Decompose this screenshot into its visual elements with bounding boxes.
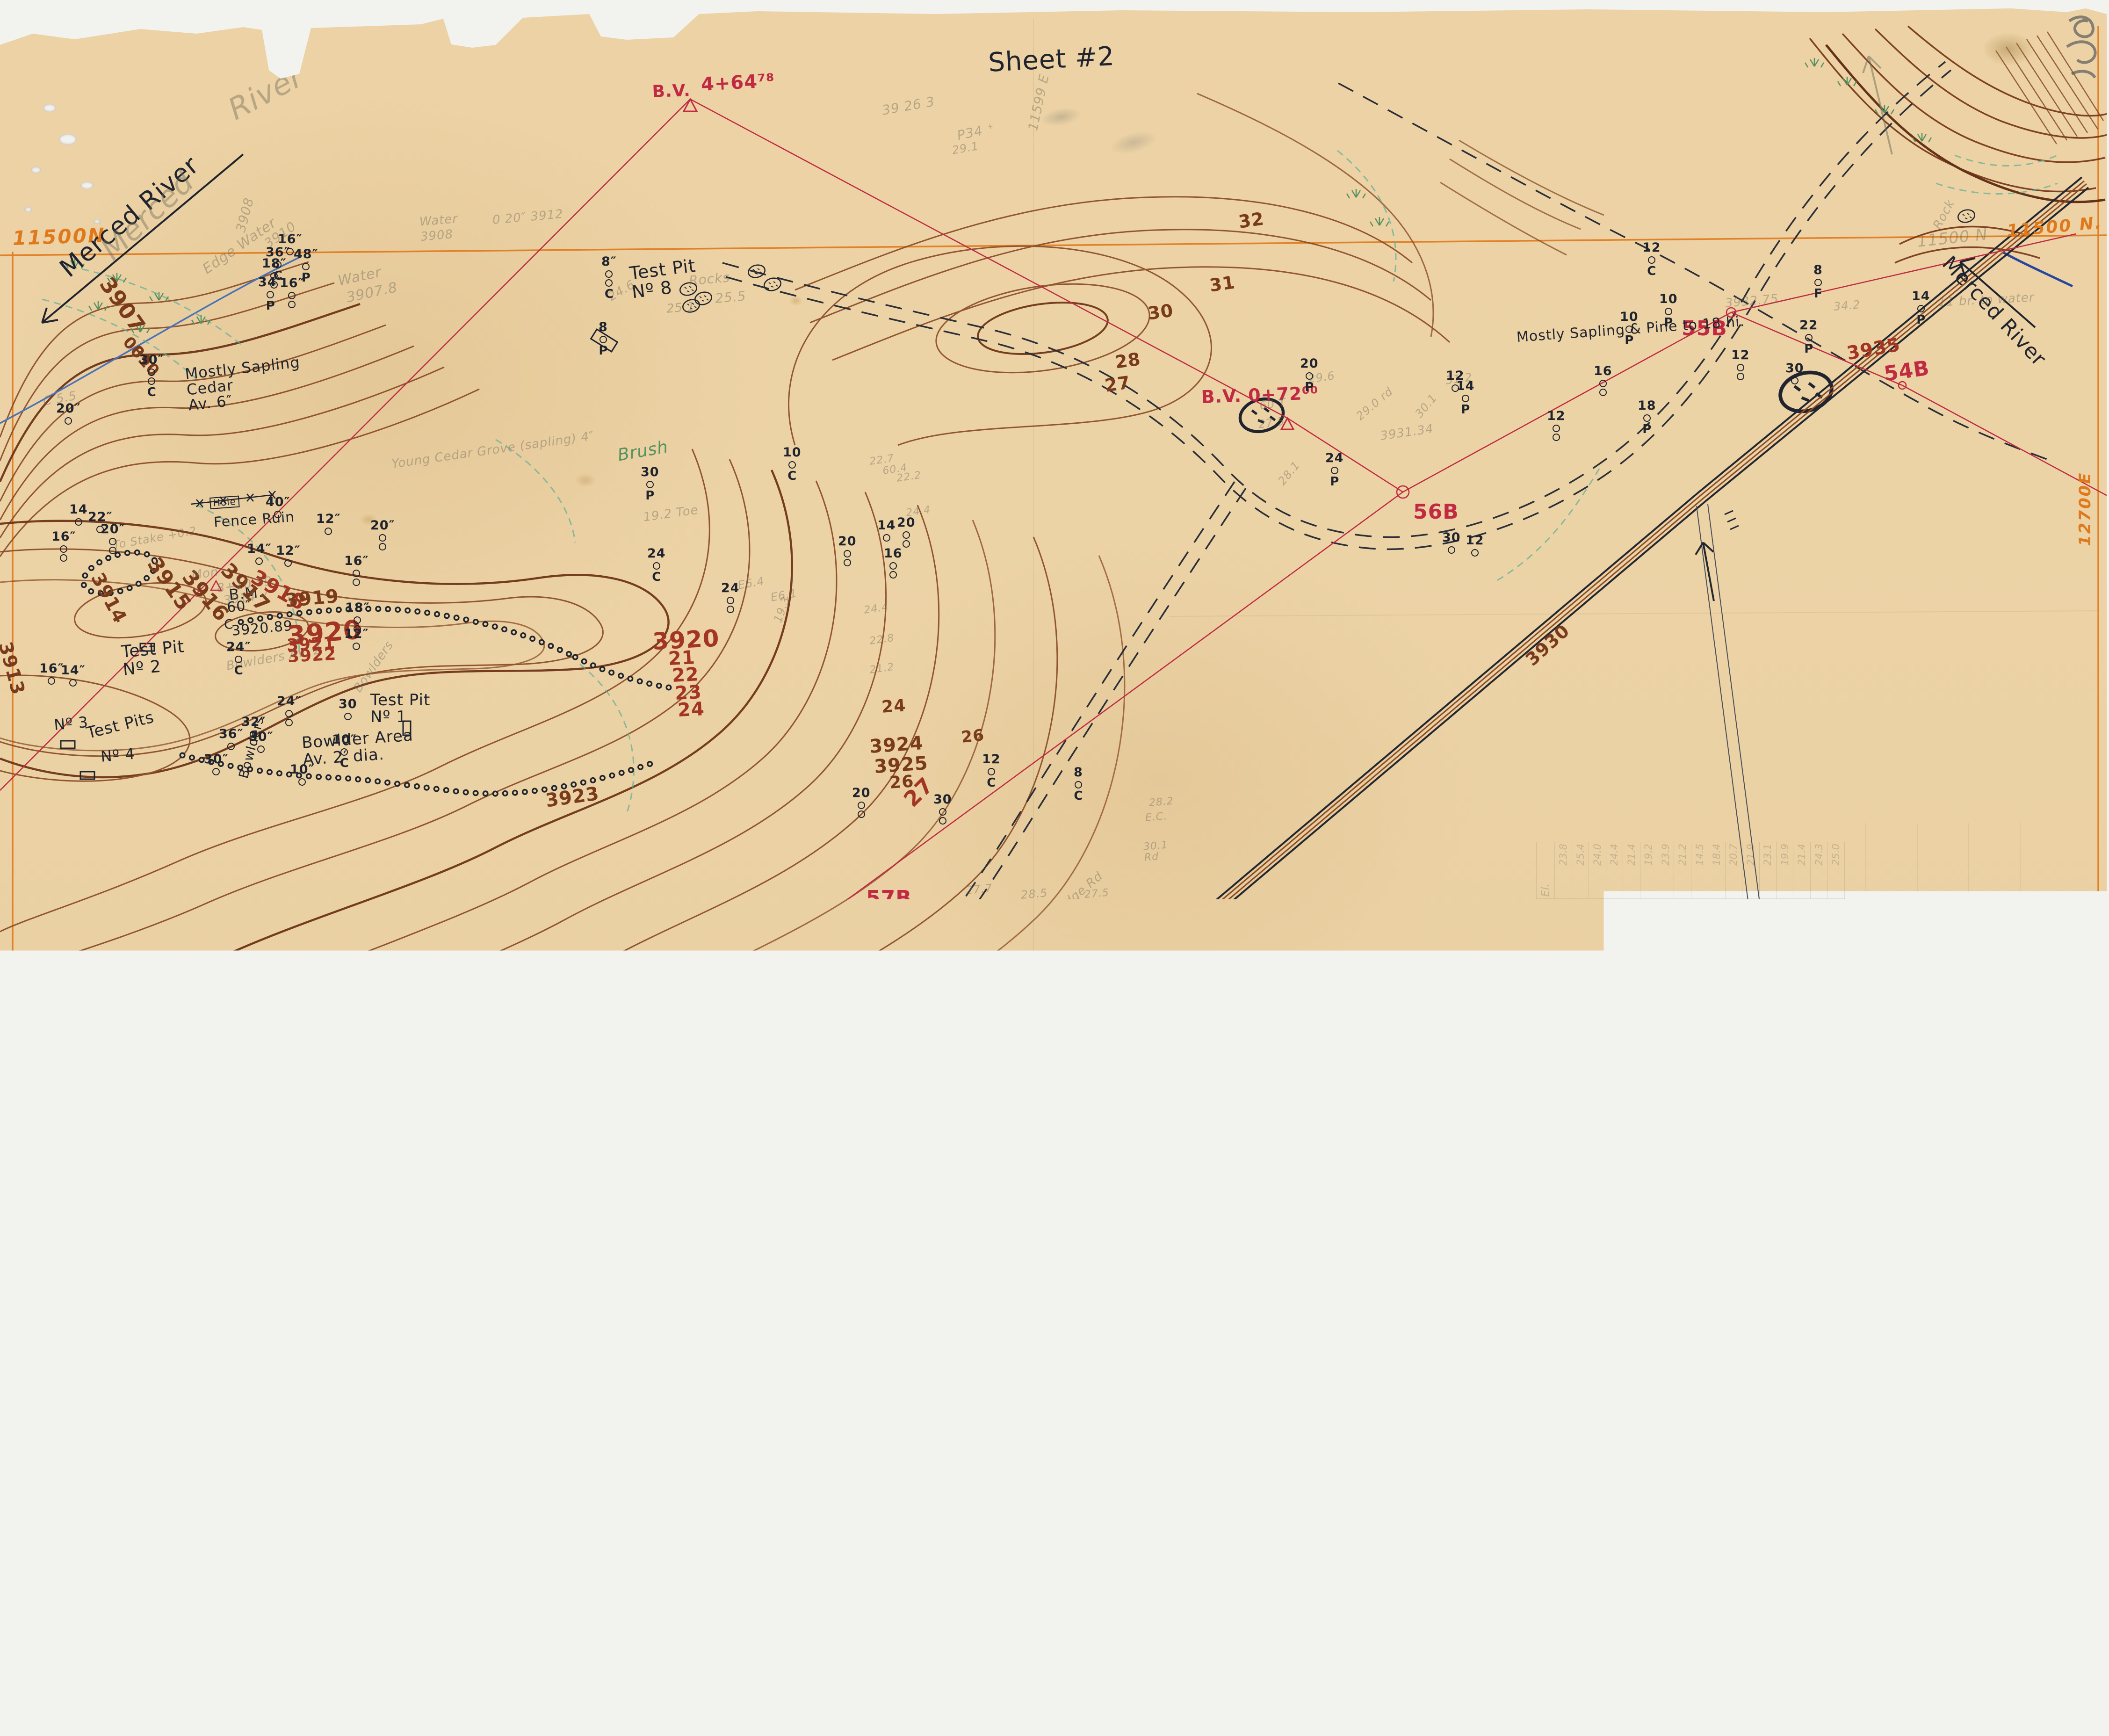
tree-size-label: 16″	[280, 276, 304, 290]
survey-cell: -6.4	[1793, 898, 1810, 963]
survey-cell: 15	[1810, 1145, 1827, 1192]
tree-symbol: 8	[294, 1473, 303, 1497]
survey-cell: -2.8	[1827, 898, 1845, 963]
map-label-gh-342: 34.2	[1833, 299, 1861, 313]
tree-trunk-icon	[379, 543, 386, 550]
survey-cell: -6 3.2	[1657, 1019, 1674, 1096]
tree-trunk-icon	[1737, 373, 1744, 380]
map-label-c30t: 30	[1147, 301, 1175, 323]
survey-cell	[1810, 963, 1827, 1020]
survey-cell: 16	[1827, 1145, 1845, 1192]
map-label-gh-282: 28.2	[1148, 796, 1174, 809]
tree-size-label: 14	[1912, 289, 1930, 304]
tree-species-label: P	[1642, 422, 1651, 436]
survey-cell: 21.2	[1674, 842, 1691, 899]
survey-row: 13130-7.919.9	[1777, 842, 1793, 1193]
tree-trunk-icon	[1625, 325, 1633, 333]
tree-size-label: 20	[1300, 356, 1319, 371]
tree-size-label: 30	[1785, 361, 1804, 376]
tree-symbol: 16″	[51, 529, 76, 562]
tree-trunk-icon	[858, 802, 865, 809]
tree-trunk-icon	[988, 768, 995, 775]
tree-trunk-icon	[939, 808, 946, 816]
tree-trunk-icon	[835, 1013, 843, 1020]
tree-symbol: 8F	[1813, 263, 1823, 301]
tree-symbol: 14C	[338, 1482, 356, 1519]
survey-cell: -4.7	[1759, 898, 1776, 963]
tree-symbol: 36″	[219, 727, 244, 750]
survey-cell: 14.5	[1691, 842, 1708, 899]
tree-trunk-icon	[1805, 334, 1813, 341]
tree-size-label: 36″	[219, 727, 244, 741]
tree-species-label: C	[342, 1505, 351, 1519]
survey-cell: 9	[1708, 1145, 1725, 1192]
tree-size-label: 14	[69, 502, 88, 517]
tree-size-label: 14″	[61, 663, 86, 678]
tree-size-label: 16	[1594, 364, 1612, 378]
tree-trunk-icon	[1665, 308, 1672, 315]
tree-symbol: 10P	[1620, 310, 1639, 347]
survey-row: 14114-6.421.4	[1793, 842, 1810, 1193]
tree-size-label: 18	[1638, 398, 1656, 413]
tree-size-label: 8	[834, 997, 844, 1012]
tree-trunk-icon	[790, 978, 798, 986]
survey-cell: 8	[1691, 1145, 1708, 1192]
tree-species-label: C	[851, 1025, 860, 1039]
tree-trunk-icon	[802, 937, 810, 945]
map-label-c26b: 26	[961, 727, 985, 746]
survey-cell: -7.1	[1725, 898, 1742, 963]
tree-size-label: 30″	[204, 752, 229, 767]
tree-trunk-icon	[1917, 305, 1925, 312]
survey-cell: 23.1	[1759, 842, 1776, 899]
tree-symbol: 8C	[834, 997, 844, 1035]
tree-trunk-icon	[1599, 389, 1607, 396]
survey-cell: 75	[1640, 1096, 1657, 1146]
tree-size-label: 14	[338, 1482, 356, 1496]
survey-cell: -8.6	[1640, 898, 1657, 963]
tree-size-label: 20″	[56, 401, 81, 416]
survey-cell	[1623, 1019, 1640, 1096]
tree-species-label: F	[1814, 287, 1822, 301]
tree-size-label: 48″	[294, 247, 318, 261]
corner-scribble	[2067, 17, 2095, 78]
tree-trunk-icon	[889, 562, 897, 570]
tree-species-label: P	[1664, 316, 1673, 330]
tree-size-label: 24	[647, 546, 666, 561]
tree-species-label: C	[834, 1021, 843, 1035]
tree-size-label: 30	[641, 465, 659, 479]
tree-size-label: 10	[846, 1001, 865, 1015]
tree-species-label: C	[340, 756, 349, 770]
tree-symbol: 20″	[56, 401, 81, 425]
survey-cell	[1793, 1019, 1810, 1096]
tree-size-label: 8	[788, 1001, 798, 1015]
tree-size-label: 20″	[101, 522, 125, 536]
tree-species-label: C	[291, 1522, 300, 1536]
tree-size-label: 14	[877, 518, 896, 533]
tree-size-label: 14″	[247, 542, 272, 556]
map-label-o-10700: 10700 N	[97, 1656, 204, 1681]
tree-size-label: 18	[785, 962, 803, 977]
survey-cell: 114	[1793, 1096, 1810, 1146]
tree-symbol: 30	[1442, 530, 1461, 554]
survey-notes-table: StaIntBeamH.I.DiffEl.27.823.8129-2.425.4…	[1557, 821, 1866, 1172]
tree-size-label: 16″	[344, 554, 369, 568]
tree-species-label: C	[788, 1025, 797, 1039]
map-label-c3915v: 3915	[84, 1492, 103, 1533]
survey-cell: -7.9	[1777, 898, 1793, 963]
map-label-sta-57b: 57B	[866, 888, 912, 909]
tree-trunk-icon	[1791, 377, 1798, 384]
survey-row: 459-6.421.4	[1623, 842, 1640, 1193]
tree-trunk-icon	[1471, 549, 1479, 557]
tree-trunk-icon	[353, 579, 360, 586]
survey-cell	[1777, 1019, 1793, 1096]
survey-cell	[1742, 963, 1759, 1020]
tree-species-label: P	[1461, 403, 1470, 417]
tree-symbol: 18P	[785, 962, 803, 1000]
tree-size-label: 16	[884, 546, 903, 561]
tree-symbol: 10″	[290, 762, 315, 786]
tree-trunk-icon	[344, 713, 352, 720]
survey-cell: 29	[1572, 1096, 1589, 1146]
tree-trunk-icon	[60, 554, 67, 562]
tree-trunk-icon	[235, 656, 242, 663]
survey-cell: 64	[1589, 1096, 1606, 1146]
tree-species-label: C	[812, 1058, 821, 1072]
survey-cell: 76	[1810, 1096, 1827, 1146]
tree-size-label: 10	[783, 445, 802, 460]
tree-size-label: 8	[812, 1034, 821, 1049]
tree-trunk-icon	[1643, 414, 1651, 422]
survey-cell	[1555, 1019, 1572, 1096]
tree-symbol: 34″P	[258, 275, 283, 313]
map-label-fence-hole: Hole	[209, 496, 240, 509]
tree-trunk-icon	[60, 545, 67, 553]
map-label-title-4: Scale 1″= 40′	[1779, 1441, 1923, 1468]
tree-trunk-icon	[831, 1064, 838, 1072]
tree-species-label: C	[1647, 264, 1656, 278]
map-label-c91: 91	[136, 1503, 153, 1524]
survey-cell: 24.4	[1606, 842, 1623, 899]
tree-species-label: P	[1804, 342, 1813, 356]
survey-cell: -3 4.6	[1589, 1019, 1606, 1096]
tree-size-label: 10	[1659, 292, 1678, 306]
survey-cell	[1708, 1019, 1725, 1096]
tree-size-label: 12	[1731, 348, 1750, 362]
survey-cell: -3.9	[1657, 898, 1674, 963]
tree-trunk-icon	[379, 534, 386, 542]
tree-symbol: 14P	[1456, 379, 1475, 417]
survey-cell: 21.4	[1793, 842, 1810, 899]
tree-symbol: 12	[1731, 348, 1750, 380]
tree-species-label: P	[645, 489, 654, 503]
tree-symbol: 22P	[1799, 318, 1818, 356]
tree-trunk-icon	[48, 677, 55, 685]
tree-symbol: 30	[933, 792, 952, 825]
tree-symbol: 8P	[599, 320, 608, 358]
survey-cell: 25.4	[1572, 842, 1589, 899]
tree-size-label: 12″	[316, 512, 341, 526]
tree-size-label: 16″	[278, 232, 303, 246]
survey-row: 367-5 4.83.75-3.424.4	[1606, 842, 1623, 1193]
tree-trunk-icon	[939, 817, 946, 825]
survey-cell: 72	[1691, 1096, 1708, 1146]
survey-cell: 10	[1725, 1145, 1742, 1192]
survey-cell: 6.8	[1674, 963, 1691, 1020]
tree-trunk-icon	[212, 768, 220, 775]
tree-size-label: 10	[825, 1049, 844, 1063]
tree-symbol: 16″	[344, 554, 369, 586]
tree-symbol: 30	[1785, 361, 1804, 384]
tree-trunk-icon	[1814, 279, 1822, 286]
tree-trunk-icon	[353, 643, 360, 650]
tree-symbol: 16	[884, 546, 903, 579]
survey-row: 575-5 9.7-8.619.2	[1640, 842, 1657, 1193]
survey-cell: 23.9	[1657, 842, 1674, 899]
tree-size-label: 8	[1074, 765, 1083, 780]
survey-cell: -9.4	[1708, 898, 1725, 963]
map-label-gh-277: 27.7	[965, 882, 993, 897]
tree-trunk-icon	[813, 1050, 820, 1058]
tree-size-label: 30	[933, 792, 952, 807]
tree-trunk-icon	[883, 534, 890, 542]
tree-symbol: 8C	[788, 1001, 798, 1039]
tree-size-label: 20	[852, 786, 871, 800]
tree-size-label: 40″	[266, 495, 290, 509]
tree-size-label: 18″	[345, 600, 370, 615]
survey-cell: 93	[1742, 1096, 1759, 1146]
tree-symbol: 24C	[647, 546, 666, 584]
survey-cell: 3	[1606, 1145, 1623, 1192]
map-label-c22r: 22	[353, 1391, 383, 1416]
tree-symbol: 10″C	[332, 732, 357, 770]
survey-cell	[1777, 963, 1793, 1020]
survey-cell: 1	[1572, 1145, 1589, 1192]
survey-cell: 3.75	[1606, 963, 1623, 1020]
tree-species-label: C	[987, 776, 996, 790]
tree-symbol: 12	[1547, 409, 1566, 441]
tree-symbol: 24″	[277, 694, 302, 726]
survey-cell	[1572, 1019, 1589, 1096]
tree-trunk-icon	[298, 778, 306, 786]
tree-size-label: 16″	[51, 529, 76, 544]
tree-trunk-icon	[109, 538, 116, 545]
map-label-c24a: 24	[881, 697, 907, 716]
tree-trunk-icon	[285, 710, 293, 717]
survey-cell: 24.0	[1589, 842, 1606, 899]
tree-trunk-icon	[30, 1165, 37, 1172]
map-label-ink-c14: C 14	[287, 1458, 322, 1475]
survey-cell	[1759, 1019, 1776, 1096]
survey-cell	[1742, 1019, 1759, 1096]
map-label-gh-3908b: 3908	[420, 228, 454, 244]
survey-cell	[1555, 1096, 1572, 1146]
survey-column-header: Beam	[1537, 1019, 1555, 1096]
map-label-c24b2: 24	[677, 699, 705, 720]
survey-cell	[1725, 1019, 1742, 1096]
tree-symbol: 24P	[1325, 451, 1344, 489]
survey-cell: 46	[1674, 1096, 1691, 1146]
survey-row: 129-2.425.4	[1572, 842, 1589, 1193]
tree-size-label: 8	[294, 1473, 303, 1488]
survey-cell: 21.4	[1623, 842, 1640, 899]
survey-cell: -5.9	[1742, 898, 1759, 963]
tree-species-label: C	[234, 664, 243, 678]
survey-cell: 21.9	[1742, 842, 1759, 899]
tree-species-label: P	[1916, 313, 1925, 327]
survey-cell: -2.4	[1572, 898, 1589, 963]
tree-size-label: 18″	[262, 256, 287, 271]
tree-trunk-icon	[65, 417, 72, 425]
tree-symbol: 14P	[1912, 289, 1930, 327]
tree-size-label: 10	[1620, 310, 1639, 324]
tree-size-label: 16	[19, 1132, 37, 1146]
survey-column-header: El.	[1537, 842, 1555, 899]
tree-size-label: 24	[721, 581, 740, 595]
survey-cell: 130	[1777, 1096, 1793, 1146]
survey-row: 12144-4.723.1	[1759, 842, 1776, 1193]
tree-trunk-icon	[340, 748, 348, 756]
tree-symbol: 20	[852, 786, 871, 818]
tree-size-label: 32″	[241, 715, 266, 729]
tree-species-label: C	[830, 1072, 838, 1086]
tree-trunk-icon	[653, 562, 660, 570]
tree-symbol: 24	[721, 581, 740, 613]
tree-symbol: 20″	[370, 518, 395, 550]
tree-symbol: 30	[339, 697, 357, 720]
tree-size-label: 12″	[276, 543, 301, 558]
tree-symbol: 12″	[344, 627, 369, 650]
tree-symbol: 30″C	[139, 353, 164, 399]
map-label-gh-285: 28.5	[1020, 887, 1048, 901]
tree-trunk-icon	[903, 531, 910, 539]
tree-size-label: 12	[1642, 240, 1661, 255]
survey-cell: 7	[1674, 1145, 1691, 1192]
tree-symbol: 14″	[61, 663, 86, 687]
survey-cell	[1793, 963, 1810, 1020]
tree-trunk-icon	[267, 291, 274, 298]
tree-symbol: 18P	[1638, 398, 1656, 436]
tree-size-label: 20	[838, 534, 857, 549]
tree-trunk-icon	[148, 377, 155, 385]
tree-symbol: 12″	[276, 543, 301, 567]
survey-cell: 19.2	[1640, 842, 1657, 899]
tree-trunk-icon	[858, 810, 865, 818]
survey-cell: 11	[1742, 1145, 1759, 1192]
tree-symbol: 17	[24, 1149, 43, 1172]
map-label-gh-301rd: 30.1 Rd	[1143, 839, 1170, 863]
map-label-c27t: 27	[1104, 373, 1132, 395]
survey-row: 1193-5.921.9	[1742, 842, 1759, 1193]
survey-row: 1576-3.524.3	[1810, 842, 1827, 1193]
map-label-title-7: 104-60634	[1876, 1511, 1988, 1535]
tree-symbol: 20″	[101, 522, 125, 554]
tree-symbol: 10C	[783, 445, 802, 483]
tree-symbol: 10P	[1659, 292, 1678, 330]
tree-trunk-icon	[727, 606, 734, 613]
tree-trunk-icon	[1553, 434, 1560, 441]
tree-size-label: 30″	[249, 730, 274, 744]
tree-symbol: 20″C	[283, 1498, 308, 1536]
map-label-gh-255: 25.5	[715, 289, 747, 305]
tree-symbol: 16″	[39, 661, 64, 685]
survey-cell: 103	[1708, 1096, 1725, 1146]
tree-trunk-icon	[148, 369, 155, 376]
survey-cell: 135	[1725, 1096, 1742, 1146]
tree-trunk-icon	[288, 301, 296, 308]
survey-cell: 20.7	[1725, 842, 1742, 899]
survey-cell	[1555, 1145, 1572, 1192]
survey-cell: 13	[1777, 1145, 1793, 1192]
tree-size-label: 12″	[344, 627, 369, 641]
tree-trunk-icon	[605, 279, 613, 287]
tree-symbol: 20	[897, 515, 916, 548]
tree-size-label: 12	[1547, 409, 1566, 423]
tree-size-label: 22	[1799, 318, 1818, 333]
tree-size-label: 20	[897, 515, 916, 530]
tree-symbol: 12C	[1642, 240, 1661, 278]
survey-cell: 14	[1793, 1145, 1810, 1192]
tree-trunk-icon	[109, 547, 116, 554]
survey-cell	[1827, 963, 1845, 1020]
tree-symbol: 12″	[316, 512, 341, 535]
map-label-title-5: SHEET 2	[1777, 1472, 1860, 1495]
tree-size-label: 20″	[370, 518, 395, 533]
tree-symbol: 30″	[249, 730, 274, 753]
tree-size-label: 10″	[332, 732, 357, 747]
survey-cell: -6.6	[1674, 898, 1691, 963]
survey-row: 10135-7.120.7	[1725, 842, 1742, 1193]
tree-size-label: 30″	[139, 353, 164, 367]
tree-size-label: 8	[1813, 263, 1823, 277]
tree-trunk-icon	[353, 570, 360, 577]
survey-cell	[1623, 963, 1640, 1020]
survey-cell: 67	[1606, 1096, 1623, 1146]
map-label-c41: 41	[147, 1464, 165, 1485]
tree-trunk-icon	[75, 518, 82, 526]
tree-size-label: 8″	[601, 254, 617, 269]
tree-species-label: P	[599, 344, 607, 358]
map-paper-sheet: Sheet #2B.V.4+64⁷⁸B.V. 0+72⁰⁰56B55B54B57…	[0, 0, 2109, 1736]
tree-symbol: 24″C	[226, 640, 251, 678]
map-label-c20big: 20	[196, 1483, 229, 1508]
tree-size-label: 34″	[258, 275, 283, 289]
tree-trunk-icon	[295, 1489, 302, 1497]
survey-cell	[1674, 1019, 1691, 1096]
tree-symbol: 30P	[641, 465, 659, 503]
tree-trunk-icon	[354, 616, 361, 624]
tree-trunk-icon	[646, 481, 654, 488]
map-label-gh-308rd: 30.8 Rd	[966, 983, 995, 1008]
tree-symbol: 14	[877, 518, 896, 542]
tree-trunk-icon	[288, 292, 296, 299]
tree-trunk-icon	[284, 559, 292, 567]
survey-cell	[1810, 1019, 1827, 1096]
survey-cell: 24.3	[1810, 842, 1827, 899]
map-label-no3: Nº 3	[53, 715, 89, 733]
tree-trunk-icon	[788, 461, 796, 469]
survey-cell: 59	[1623, 1096, 1640, 1146]
survey-cell	[1759, 963, 1776, 1020]
tree-symbol: 12	[1466, 533, 1484, 557]
tree-symbol: 20P	[1300, 356, 1319, 394]
tree-size-label: 20″	[283, 1498, 308, 1513]
survey-cell: 9.60	[1657, 963, 1674, 1020]
tree-size-label: 24″	[226, 640, 251, 654]
tree-trunk-icon	[255, 557, 263, 565]
